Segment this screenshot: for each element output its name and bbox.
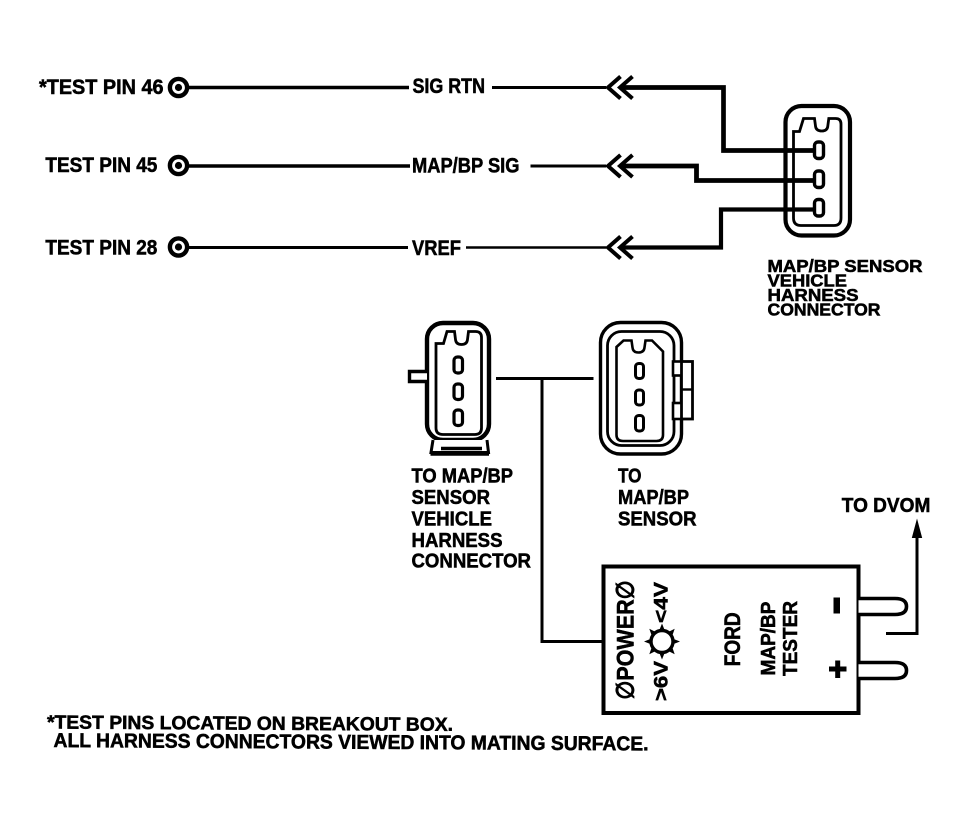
svg-text:*TEST PIN 46: *TEST PIN 46 [39,75,164,99]
svg-text:ALL HARNESS CONNECTORS VIEWED: ALL HARNESS CONNECTORS VIEWED INTO MATIN… [53,730,648,755]
svg-text:TO: TO [618,465,642,488]
svg-text:MAP/BP SIG: MAP/BP SIG [412,154,520,178]
svg-text:TEST PIN 28: TEST PIN 28 [45,236,157,260]
svg-text:TO DVOM: TO DVOM [842,495,931,517]
svg-text:CONNECTOR: CONNECTOR [768,300,881,320]
svg-text:>6V: >6V [651,661,673,701]
svg-text:MAP/BP: MAP/BP [618,486,689,509]
svg-text:VREF: VREF [412,236,461,260]
svg-text:SENSOR: SENSOR [412,486,491,509]
svg-text:TO MAP/BP: TO MAP/BP [412,465,514,488]
svg-text:∅POWER∅: ∅POWER∅ [613,581,640,700]
svg-text:VEHICLE: VEHICLE [412,507,493,530]
svg-text:TEST PIN 45: TEST PIN 45 [45,153,157,177]
svg-text:SENSOR: SENSOR [618,507,697,530]
svg-text:CONNECTOR: CONNECTOR [412,550,532,573]
svg-text:MAP/BP: MAP/BP [758,602,780,676]
svg-text:SIG RTN: SIG RTN [413,74,486,98]
svg-text:FORD: FORD [720,612,745,666]
svg-text:<4V: <4V [651,582,673,623]
svg-text:TESTER: TESTER [780,600,802,676]
